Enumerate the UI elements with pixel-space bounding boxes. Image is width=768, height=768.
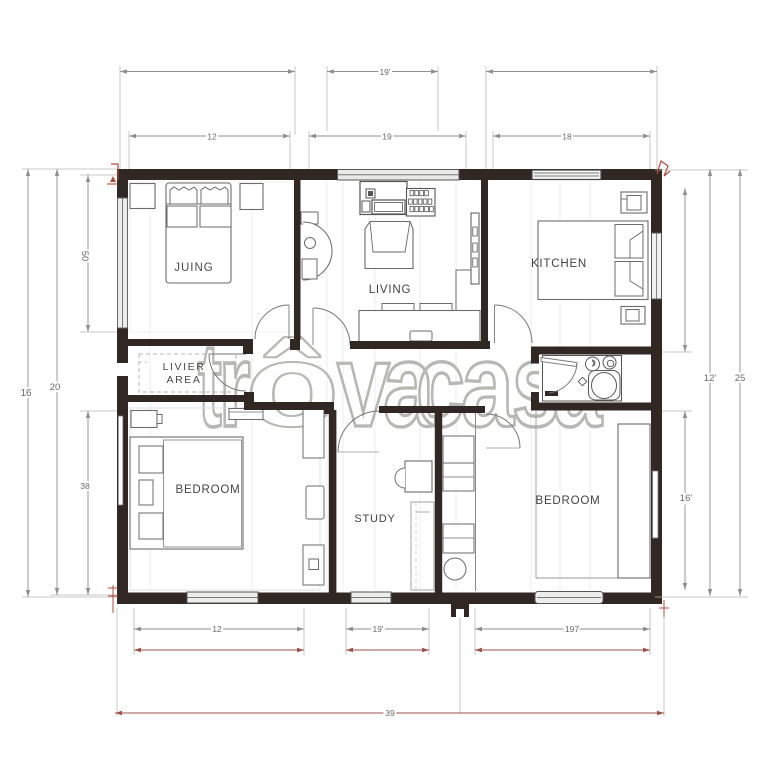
svg-text:20: 20 — [50, 382, 61, 393]
svg-text:197: 197 — [565, 624, 579, 634]
svg-text:ô: ô — [245, 319, 339, 452]
svg-text:25: 25 — [735, 373, 746, 384]
svg-text:t: t — [198, 318, 222, 451]
svg-text:19': 19' — [372, 624, 383, 634]
svg-text:50: 50 — [79, 251, 90, 262]
svg-text:BEDROOM: BEDROOM — [175, 484, 240, 496]
svg-text:JUING: JUING — [174, 262, 214, 274]
svg-text:19': 19' — [379, 67, 390, 77]
svg-text:39: 39 — [385, 708, 395, 718]
svg-text:STUDY: STUDY — [354, 513, 395, 525]
svg-text:18: 18 — [562, 132, 572, 142]
svg-text:16': 16' — [680, 493, 693, 504]
svg-text:LIVIER: LIVIER — [163, 361, 206, 373]
svg-text:38: 38 — [80, 481, 90, 491]
svg-text:12: 12 — [212, 624, 222, 634]
svg-text:AREA: AREA — [167, 374, 202, 386]
svg-text:12': 12' — [704, 373, 717, 384]
svg-text:19: 19 — [382, 132, 392, 142]
svg-text:16: 16 — [20, 388, 32, 399]
svg-text:LIVING: LIVING — [369, 284, 412, 296]
svg-text:BEDROOM: BEDROOM — [535, 495, 600, 507]
svg-text:12: 12 — [207, 132, 217, 142]
svg-text:KITCHEN: KITCHEN — [531, 258, 587, 270]
